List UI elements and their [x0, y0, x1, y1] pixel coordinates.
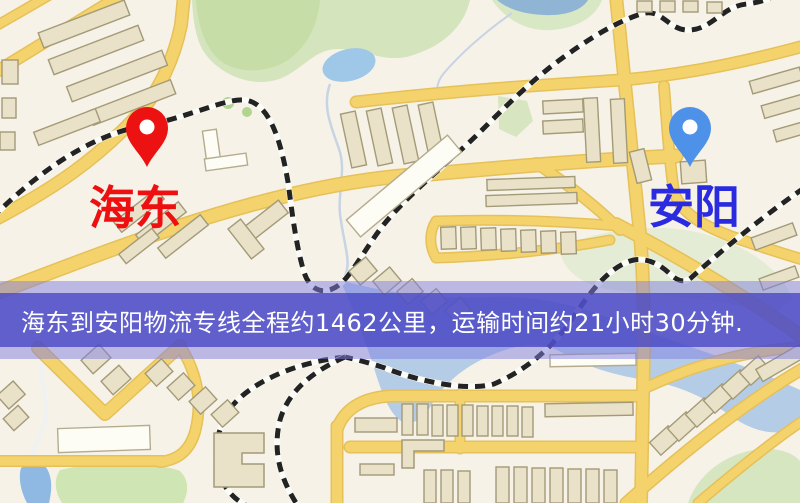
banner-text: 海东到安阳物流专线全程约1462公里，运输时间约21小时30分钟.	[0, 303, 743, 338]
map-viewport[interactable]: 海东 安阳 海东到安阳物流专线全程约1462公里，运输时间约21小时30分钟.	[0, 0, 800, 503]
origin-label: 海东	[89, 181, 181, 235]
map-canvas[interactable]: 海东 安阳	[0, 0, 800, 503]
destination-label: 安阳	[648, 180, 740, 234]
info-banner: 海东到安阳物流专线全程约1462公里，运输时间约21小时30分钟.	[0, 293, 800, 347]
